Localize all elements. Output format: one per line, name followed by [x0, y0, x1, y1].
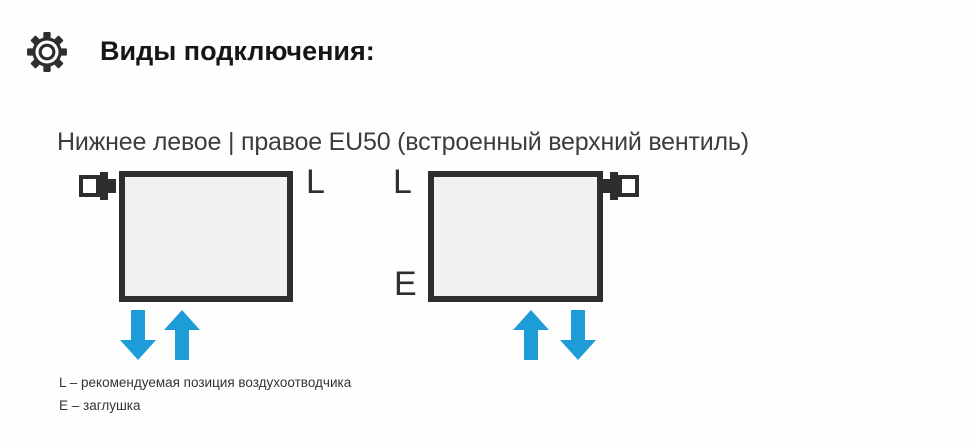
valve-stem — [610, 172, 618, 200]
flow-up-arrow-icon — [513, 310, 549, 360]
valve-nipple — [108, 179, 116, 193]
radiator-body — [119, 171, 293, 302]
flow-down-arrow-icon — [560, 310, 596, 360]
valve-stem — [100, 172, 108, 200]
legend: L – рекомендуемая позиция воздухоотводчи… — [59, 372, 351, 417]
valve-nipple — [602, 179, 610, 193]
legend-item-air-vent: L – рекомендуемая позиция воздухоотводчи… — [59, 372, 351, 395]
air-vent-label: L — [306, 165, 325, 199]
radiator-body — [428, 171, 603, 302]
legend-item-plug: E – заглушка — [59, 395, 351, 418]
plug-label: E — [394, 267, 417, 301]
valve-body — [618, 175, 639, 197]
flow-down-arrow-icon — [120, 310, 156, 360]
connection-variant-title: Нижнее левое | правое EU50 (встроенный в… — [57, 130, 749, 155]
air-vent-label: L — [393, 165, 412, 199]
page-title: Виды подключения: — [100, 38, 375, 65]
gear-icon — [26, 31, 68, 73]
valve-body — [79, 175, 100, 197]
connection-types-infographic: Виды подключения: Нижнее левое | правое … — [0, 0, 970, 446]
flow-up-arrow-icon — [164, 310, 200, 360]
